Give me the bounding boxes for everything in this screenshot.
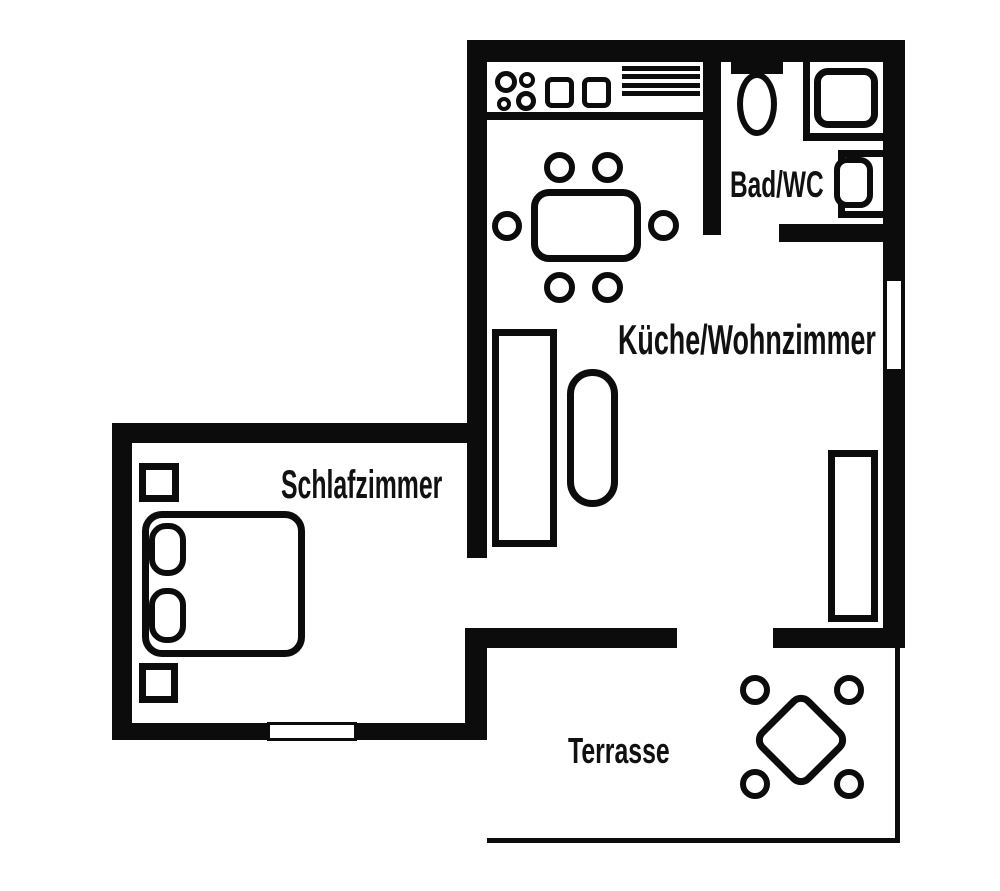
dining-table-icon: [531, 189, 641, 262]
nightstand-icon: [139, 663, 178, 703]
counter-drainer-icon: [622, 74, 700, 79]
shower-partition: [803, 133, 883, 141]
nightstand-icon: [139, 463, 179, 502]
dining-chair-icon: [544, 152, 575, 183]
shower-partition: [803, 58, 810, 140]
wall-bathroom-left: [703, 62, 721, 235]
floor-plan: Küche/Wohnzimmer Bad/WC Schlafzimmer Ter…: [0, 0, 1000, 891]
wall-top: [467, 40, 905, 62]
sideboard-icon: [828, 450, 878, 622]
dining-chair-icon: [592, 272, 623, 303]
room-label-terrace: Terrasse: [568, 733, 670, 769]
stove-burner-icon: [495, 71, 517, 93]
terrace-edge-bottom: [487, 838, 900, 843]
bedroom-window: [267, 722, 357, 741]
armchair-icon: [567, 369, 618, 507]
kitchen-sink-icon: [582, 77, 611, 108]
wall-living-bottom-left: [465, 628, 677, 648]
dining-chair-icon: [544, 272, 575, 303]
sofa-icon: [492, 329, 557, 547]
terrace-chair-icon: [740, 769, 770, 799]
wall-living-bottom-right: [773, 628, 905, 648]
room-label-bathroom: Bad/WC: [730, 166, 824, 203]
washbasin-icon: [834, 157, 873, 208]
terrace-edge-right: [895, 648, 900, 843]
wall-bedroom-left: [112, 423, 132, 740]
right-wall-window: [884, 278, 904, 372]
kitchen-sink-icon: [545, 77, 574, 108]
pillow-icon: [149, 588, 186, 643]
stove-burner-icon: [516, 91, 536, 111]
dining-chair-icon: [492, 211, 522, 241]
terrace-chair-icon: [834, 769, 864, 799]
counter-drainer-icon: [622, 91, 700, 96]
stove-burner-icon: [497, 97, 511, 111]
wall-kitchen-left-upper: [467, 40, 487, 558]
toilet-icon: [737, 72, 777, 136]
dining-chair-icon: [592, 152, 623, 183]
terrace-chair-icon: [740, 675, 770, 705]
counter-drainer-icon: [622, 83, 700, 88]
washbasin-counter: [838, 211, 883, 218]
pillow-icon: [149, 523, 186, 576]
wall-bedroom-top: [112, 423, 487, 443]
shower-tray-icon: [814, 68, 878, 128]
room-label-kitchen-living: Küche/Wohnzimmer: [618, 319, 876, 361]
dining-chair-icon: [648, 210, 679, 241]
counter-drainer-icon: [622, 66, 700, 71]
kitchen-counter-edge: [487, 112, 703, 120]
terrace-chair-icon: [834, 675, 864, 705]
wall-bathroom-bottom: [779, 224, 905, 242]
room-label-bedroom: Schlafzimmer: [281, 465, 442, 505]
stove-burner-icon: [519, 72, 535, 88]
